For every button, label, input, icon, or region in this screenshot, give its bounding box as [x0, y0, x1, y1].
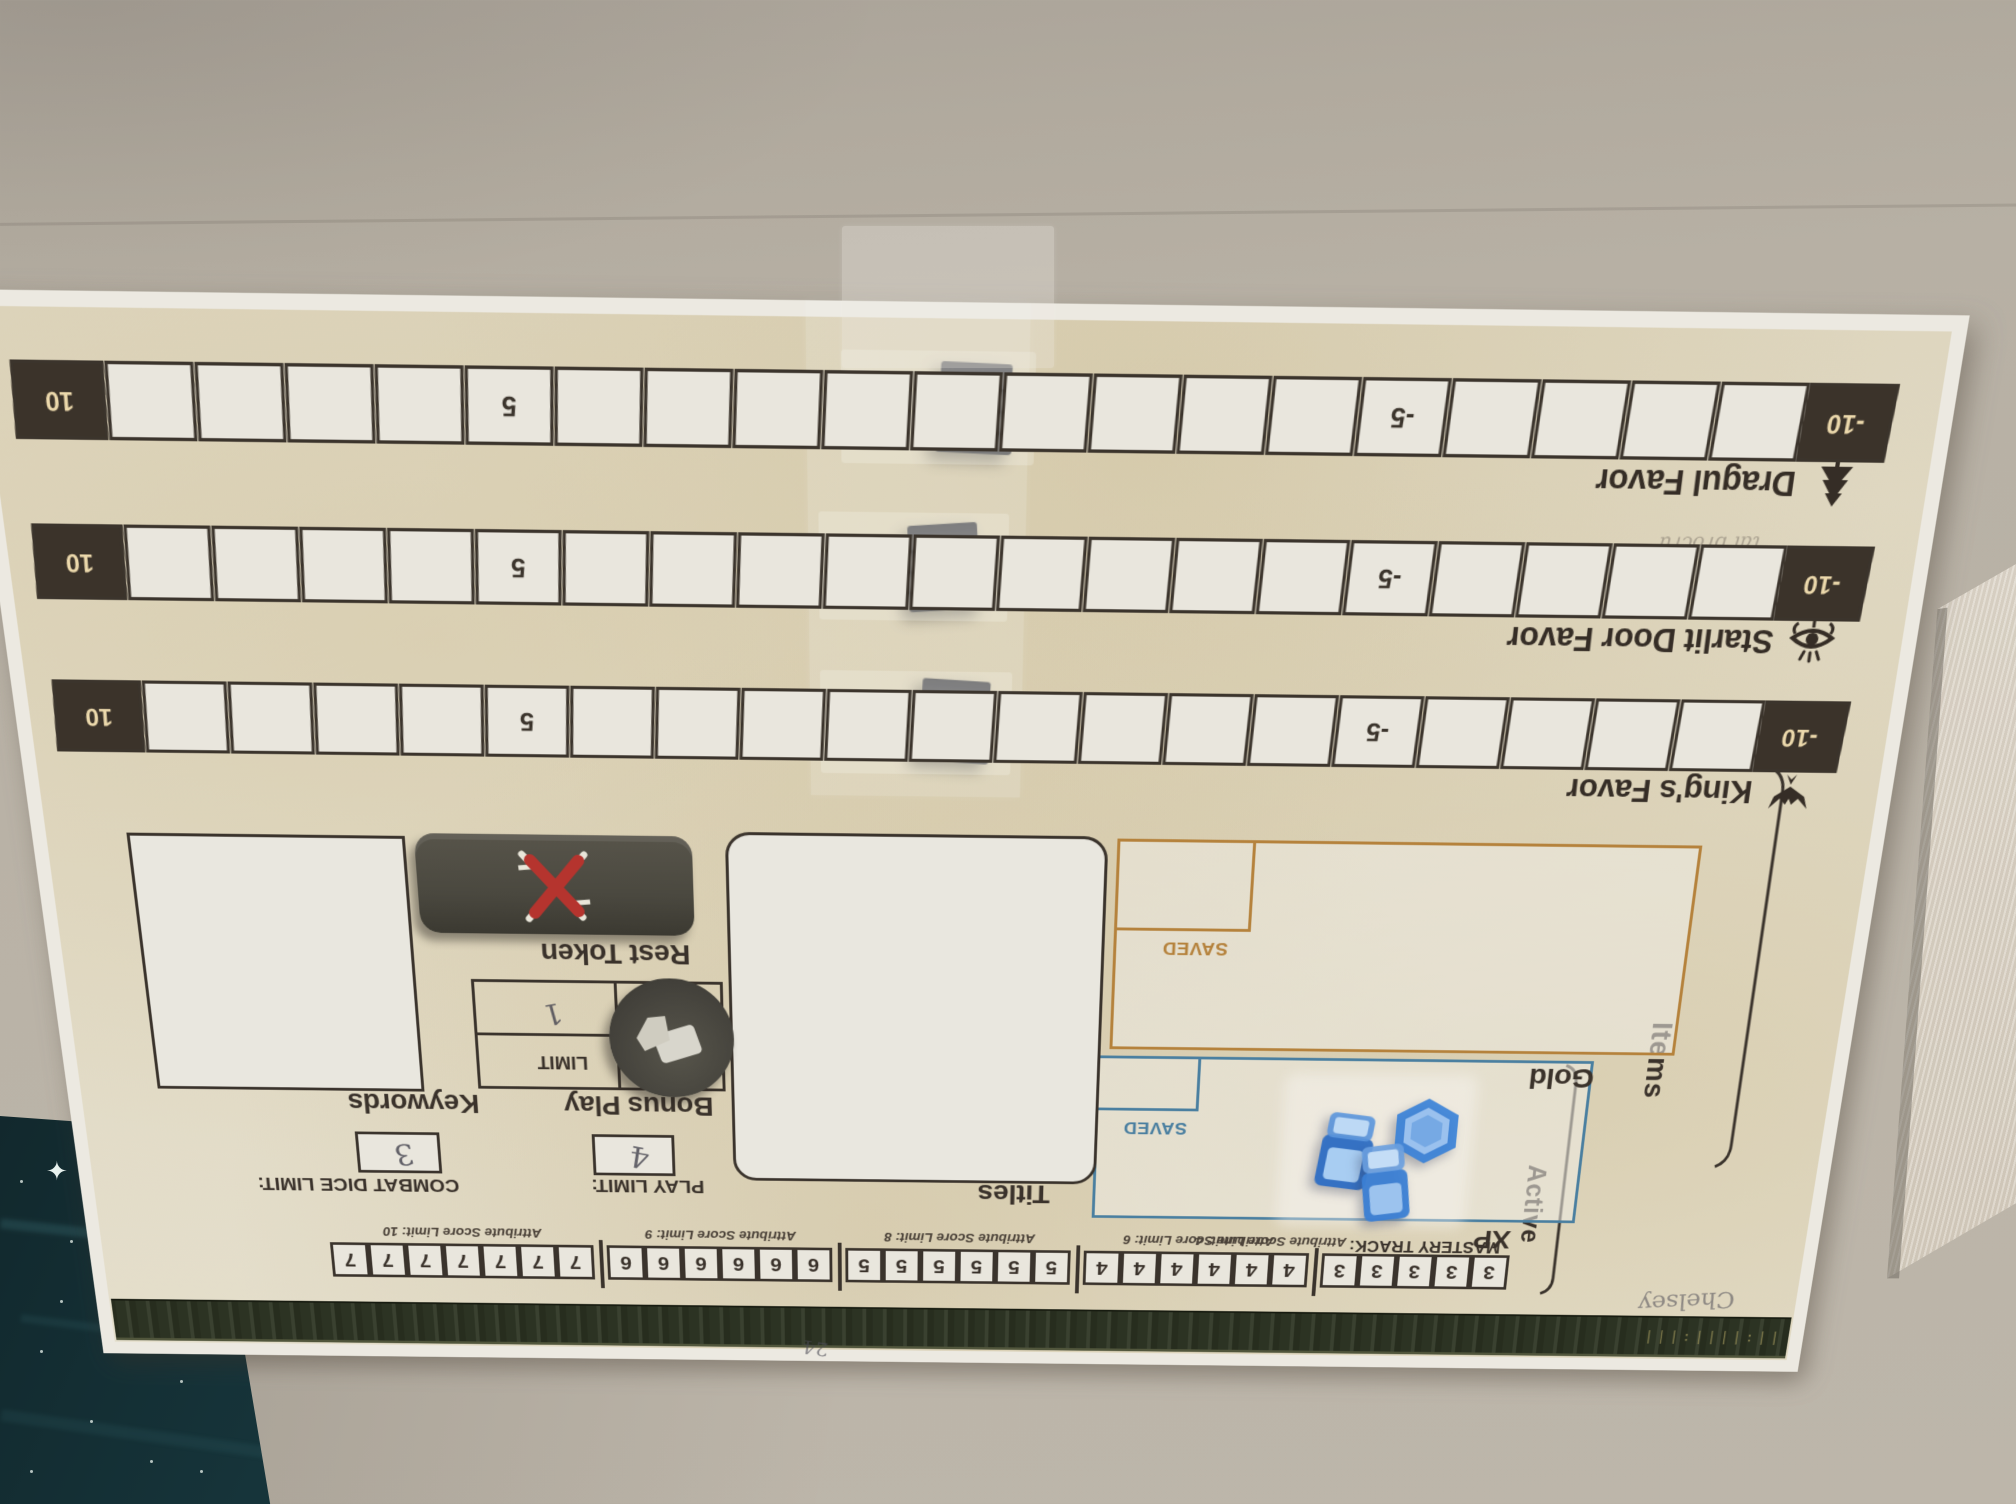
favor-cell — [824, 689, 912, 762]
favor-cell — [655, 687, 741, 760]
favor-cell — [227, 681, 314, 754]
favor-cell — [1500, 697, 1595, 770]
favor-cell — [1256, 539, 1351, 615]
favor-cell — [1429, 541, 1526, 617]
bonus-limit-label: LIMIT — [537, 1051, 589, 1073]
favor-cell — [1531, 379, 1631, 459]
track-name: Dragul Favor — [1594, 460, 1798, 502]
favor-cell — [732, 369, 823, 449]
favor-cell — [1265, 376, 1362, 456]
favor-cell — [1416, 696, 1510, 769]
favor-cell — [909, 534, 1000, 611]
parchment-area: ||:||||:||| Chelsey 24 Active MASTERY TR… — [0, 306, 1952, 1360]
favor-cell — [1708, 382, 1810, 462]
mastery-cell: 7 — [368, 1243, 409, 1278]
favor-cell — [739, 688, 826, 761]
favor-cell — [910, 371, 1003, 451]
mastery-cell: 5 — [958, 1249, 996, 1284]
track-caption-kings: King's Favor — [1564, 766, 1816, 815]
favor-cell — [284, 363, 375, 444]
mastery-cell: 5 — [920, 1249, 958, 1284]
favor-cell-min: -10 — [1792, 383, 1900, 463]
xp-saved-label: SAVED — [1123, 1117, 1188, 1138]
dragon-icon — [1763, 768, 1816, 815]
favor-cell — [104, 361, 197, 442]
favor-cell — [299, 527, 388, 604]
attribute-score-limit-label: Attribute Score Limit: 10 — [367, 1224, 557, 1240]
favor-cell — [374, 364, 464, 445]
rest-token-caption: Rest Token — [540, 936, 691, 969]
attribute-score-limit-label: Attribute Score Limit: 9 — [626, 1226, 815, 1242]
tape-strip-overhang — [842, 226, 1054, 368]
mastery-cell: 4 — [1195, 1252, 1234, 1287]
hand-card-icon — [607, 978, 736, 1098]
track-caption-starlit: Starlit Door Favor — [1505, 613, 1839, 666]
favor-cell: 5 — [465, 365, 554, 446]
mastery-cell: 3 — [1431, 1255, 1472, 1290]
favor-cell — [649, 531, 737, 608]
favor-cell — [555, 366, 644, 447]
favor-cell — [387, 528, 475, 605]
favor-cell — [821, 370, 913, 450]
favor-cell — [1078, 692, 1168, 765]
mastery-group-divider — [1311, 1248, 1318, 1296]
bonus-limit-value: 1 — [539, 995, 566, 1031]
favor-cell — [1088, 373, 1183, 453]
strip-glyphs: ||:||||:||| — [1639, 1330, 1780, 1347]
mastery-cell: 3 — [1469, 1255, 1510, 1290]
mastery-cell: 3 — [1357, 1254, 1397, 1289]
favor-cell — [823, 533, 913, 610]
play-limit-label: PLAY LIMIT: — [591, 1174, 705, 1196]
favor-cell — [1162, 693, 1253, 766]
favor-cell — [1176, 375, 1272, 455]
mastery-cell: 7 — [330, 1242, 371, 1277]
mastery-cell: 4 — [1083, 1251, 1122, 1286]
mastery-cell: 5 — [845, 1248, 883, 1283]
mastery-cell: 4 — [1232, 1252, 1272, 1287]
mastery-cell: 6 — [607, 1245, 646, 1280]
mastery-cell: 6 — [719, 1247, 757, 1282]
mastery-cell: 5 — [1032, 1250, 1070, 1285]
favor-cell: -5 — [1331, 695, 1424, 768]
attribute-score-limit-label: Attribute Score Limit: 6 — [1104, 1232, 1293, 1248]
tree-icon — [1807, 457, 1863, 509]
track-caption-dragul: Dragul Favor — [1593, 455, 1863, 509]
favor-cell-max: 10 — [52, 679, 146, 752]
eye-icon — [1784, 617, 1839, 666]
handwritten-player-name: Chelsey — [1637, 1286, 1736, 1316]
favor-cell — [1688, 544, 1788, 620]
items-bracket — [1711, 766, 1793, 1168]
gold-saved-label: SAVED — [1162, 937, 1229, 959]
mastery-cell: 3 — [1320, 1253, 1360, 1288]
favor-cell — [563, 530, 650, 607]
ornate-border-strip: ||:||||:||| — [111, 1299, 1792, 1359]
favor-cell — [313, 683, 399, 756]
favor-cell — [1669, 699, 1766, 772]
mastery-cell: 4 — [1269, 1253, 1309, 1288]
favor-cell — [993, 691, 1083, 764]
favor-cell — [996, 536, 1088, 612]
favor-cell: -5 — [1342, 540, 1438, 616]
photo-of-game-player-mat: { "colors":{"ink":"#3a322b","paper":"#e0… — [0, 0, 2016, 1504]
mastery-cell: 6 — [757, 1247, 795, 1282]
mastery-cell: 6 — [682, 1246, 721, 1281]
mastery-cell: 7 — [518, 1244, 558, 1279]
combat-dice-limit-label: COMBAT DICE LIMIT: — [257, 1172, 460, 1195]
mastery-cell: 6 — [795, 1247, 833, 1282]
mastery-cell: 6 — [644, 1246, 683, 1281]
xp-cube-token[interactable] — [1356, 1137, 1413, 1225]
favor-cell — [1442, 378, 1541, 458]
handwritten-corner-mark: 24 — [801, 1335, 830, 1359]
favor-cell-max: 10 — [10, 359, 109, 440]
favor-cell-min: -10 — [1749, 700, 1851, 773]
favor-cell — [909, 690, 998, 763]
favor-cell — [211, 526, 301, 603]
mastery-cell: 4 — [1157, 1251, 1196, 1286]
gold-saved-cell — [1117, 842, 1256, 932]
favor-cell — [1247, 694, 1339, 767]
wall-shadow — [0, 0, 900, 320]
favor-cell-max: 10 — [31, 523, 127, 600]
mastery-group-divider — [599, 1240, 605, 1288]
xp-saved-cell — [1098, 1058, 1201, 1111]
star-icon: ✦ — [46, 1156, 68, 1187]
favor-cell — [1619, 380, 1720, 460]
favor-cell — [123, 524, 214, 601]
favor-cell-min: -10 — [1770, 545, 1875, 621]
favor-cell: -5 — [1354, 377, 1452, 457]
favor-cell — [1584, 698, 1680, 771]
favor-cell — [570, 686, 655, 759]
gold-caption: Gold — [1527, 1061, 1595, 1093]
keywords-box — [126, 833, 424, 1092]
mastery-group-divider — [838, 1243, 842, 1291]
track-name: Starlit Door Favor — [1505, 618, 1776, 659]
xp-caption: XP — [1472, 1224, 1512, 1254]
favor-cell — [1515, 542, 1613, 618]
favor-cell — [736, 532, 825, 609]
player-mat-sheet: ||:||||:||| Chelsey 24 Active MASTERY TR… — [0, 289, 1970, 1372]
track-name: King's Favor — [1565, 771, 1755, 809]
titles-box — [725, 832, 1109, 1185]
mastery-cell: 7 — [443, 1243, 483, 1278]
rest-token[interactable] — [414, 833, 695, 936]
mastery-group-divider — [1075, 1245, 1080, 1293]
rest-x-icon — [509, 842, 599, 927]
mastery-cell: 3 — [1394, 1254, 1435, 1289]
favor-cell — [999, 372, 1093, 452]
favor-cell: 5 — [475, 529, 562, 606]
bonus-panel-divider — [477, 1032, 619, 1036]
mastery-cell: 7 — [480, 1244, 520, 1279]
attribute-score-limit-label: Attribute Score Limit: 8 — [865, 1229, 1053, 1245]
favor-cell — [399, 684, 484, 757]
mastery-cell: 4 — [1120, 1251, 1159, 1286]
favor-cell: 5 — [485, 685, 570, 758]
favor-cell — [1083, 537, 1176, 613]
mastery-cell: 7 — [556, 1245, 595, 1280]
mastery-cell: 7 — [405, 1243, 445, 1278]
mastery-cell: 5 — [883, 1248, 921, 1283]
favor-cell — [643, 368, 733, 448]
favor-cell — [1602, 543, 1701, 619]
favor-cell — [142, 680, 230, 753]
favor-cell — [194, 362, 286, 443]
favor-cell — [1169, 538, 1263, 614]
bonus-play-disc-token[interactable] — [607, 978, 736, 1098]
mastery-cell: 5 — [995, 1250, 1033, 1285]
